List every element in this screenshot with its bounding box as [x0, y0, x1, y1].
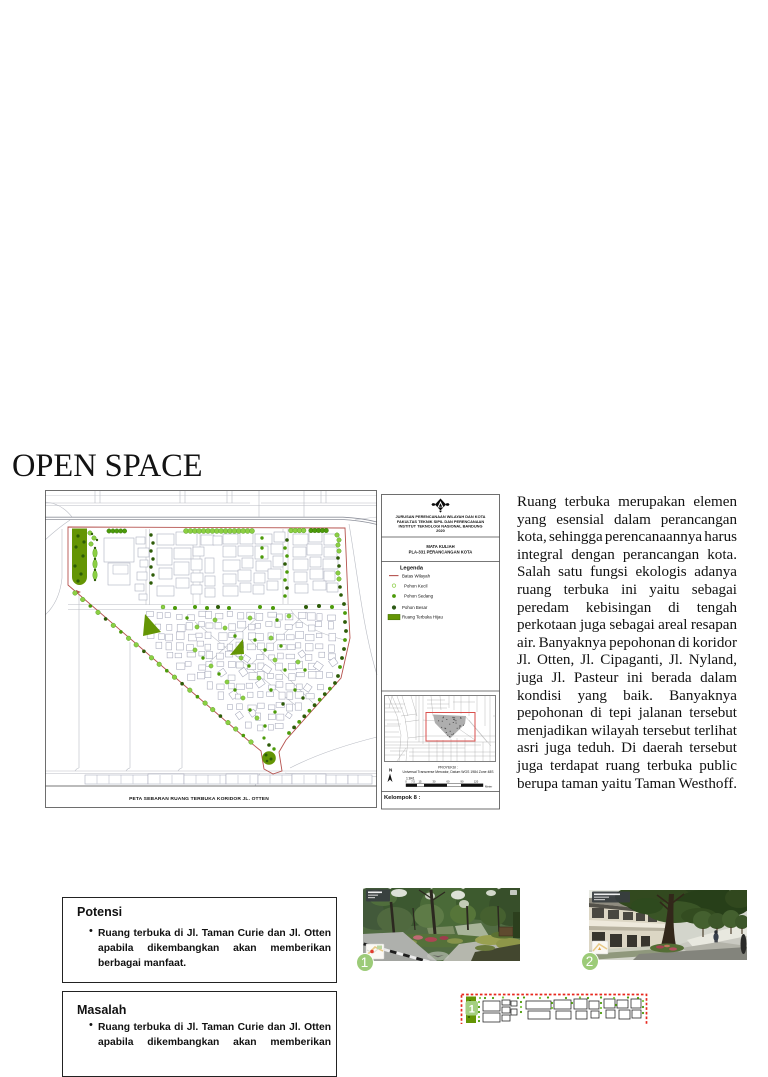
svg-text:1: 1	[469, 1003, 475, 1015]
svg-text:PROYEKSI :: PROYEKSI :	[438, 766, 458, 770]
svg-text:Batas Wilayah: Batas Wilayah	[402, 573, 431, 578]
svg-text:Kelompok 8 :: Kelompok 8 :	[384, 795, 420, 801]
svg-text:2020: 2020	[436, 528, 445, 533]
svg-text:Universal Transverse Mercator,: Universal Transverse Mercator, Datum WGS…	[402, 770, 494, 774]
svg-text:Legenda: Legenda	[400, 566, 424, 572]
svg-text:Pohon Besar: Pohon Besar	[402, 605, 428, 610]
svg-text:Ruang Terbuka Hijau: Ruang Terbuka Hijau	[402, 615, 443, 620]
svg-text:Meter: Meter	[485, 785, 492, 789]
svg-text:PLA-331 PERANCANGAN KOTA: PLA-331 PERANCANGAN KOTA	[409, 549, 473, 554]
svg-text:Pohon Kecil: Pohon Kecil	[404, 583, 427, 588]
svg-text:Pohon Sedang: Pohon Sedang	[404, 594, 434, 599]
svg-text:7.5: 7.5	[411, 780, 415, 784]
svg-text:MATA KULIAH: MATA KULIAH	[426, 544, 454, 549]
svg-text:PETA SEBARAN RUANG TERBUKA KOR: PETA SEBARAN RUANG TERBUKA KORIDOR JL. O…	[129, 796, 269, 802]
svg-text:120: 120	[474, 780, 479, 784]
